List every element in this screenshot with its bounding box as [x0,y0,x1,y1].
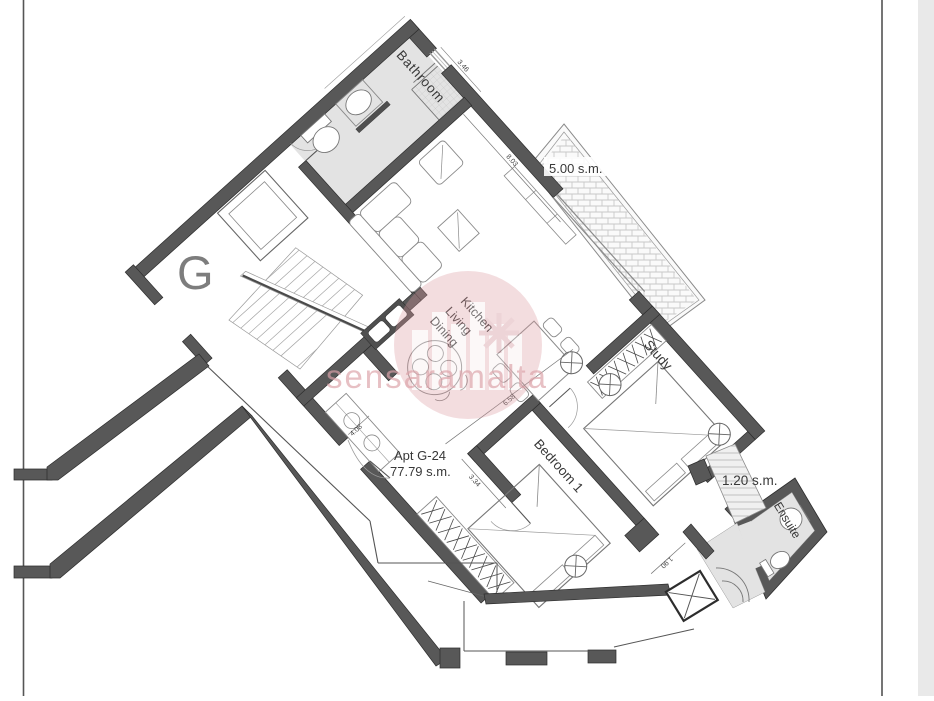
svg-text:sensaramalta: sensaramalta [326,358,548,395]
svg-text:77.79 s.m.: 77.79 s.m. [390,464,451,479]
svg-text:1.20 s.m.: 1.20 s.m. [722,473,778,488]
svg-text:5.00 s.m.: 5.00 s.m. [549,161,602,176]
svg-text:G: G [177,246,214,299]
svg-text:Apt G-24: Apt G-24 [394,448,446,463]
